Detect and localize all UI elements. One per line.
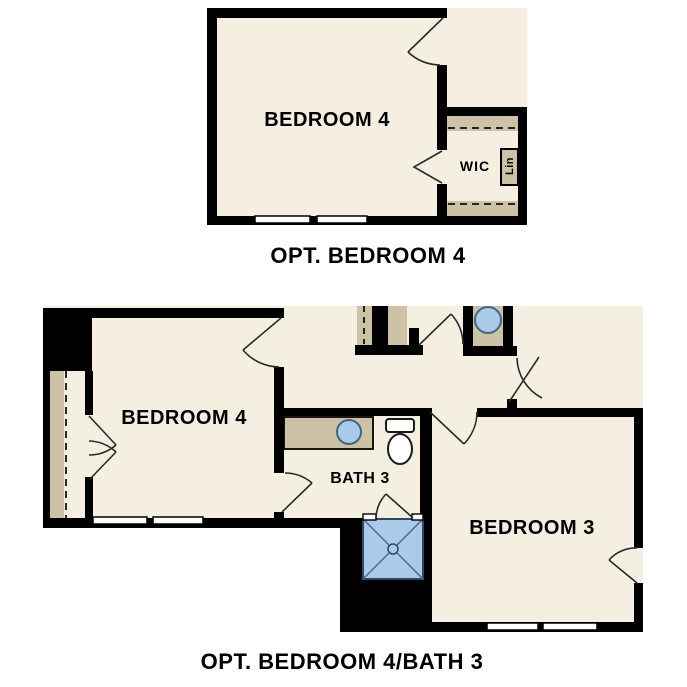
bd4-wall-right-seg2 — [274, 512, 284, 528]
linen-label: Lin — [504, 157, 516, 175]
wall-right-seg2 — [437, 184, 447, 225]
bd3-wall-right-seg1 — [634, 408, 643, 548]
toilet-tank — [386, 419, 414, 432]
wall-top — [207, 8, 447, 18]
floorplan-svg: BEDROOM 4 WIC Lin OPT. BEDROOM 4 — [0, 0, 687, 687]
shower-jamb-left — [363, 514, 376, 520]
hall-vanity-wall-left — [463, 306, 473, 347]
bd4-wall-right-seg1 — [274, 367, 284, 473]
wall-left — [207, 8, 217, 225]
plan-top-caption: OPT. BEDROOM 4 — [270, 243, 466, 268]
plan-opt-bedroom4-bath3: BEDROOM 4 BATH 3 BEDROOM 3 OPT. BEDROOM … — [43, 306, 643, 674]
wic-wall-right — [518, 107, 527, 225]
window — [255, 216, 310, 223]
shower-drain — [388, 544, 398, 554]
bd4-wall-left — [43, 371, 50, 528]
wic-shelf-top — [447, 116, 518, 131]
hall-vanity-wall-right — [503, 306, 513, 347]
hall-wall-below-vanity — [463, 346, 517, 356]
hall-closet-jamb — [409, 328, 419, 345]
closet-jamb-bottom — [85, 477, 93, 518]
bedroom4b-closet-shelf — [50, 371, 64, 518]
bedroom4b-label: BEDROOM 4 — [121, 407, 247, 429]
bath3-sink — [337, 420, 361, 444]
toilet-bowl — [388, 434, 412, 464]
window — [153, 517, 203, 524]
bath3-wall-top — [274, 408, 430, 416]
hall-closet-wall-bottom — [355, 345, 423, 355]
plan-bottom-caption: OPT. BEDROOM 4/BATH 3 — [201, 649, 484, 674]
bedroom3-label: BEDROOM 3 — [469, 517, 595, 539]
closet-jamb-top — [85, 371, 93, 415]
bath3-label: BATH 3 — [330, 470, 390, 487]
wic-label: WIC — [460, 158, 490, 174]
hall-closet-divider — [372, 306, 388, 345]
hall-sink — [475, 307, 501, 333]
plan-opt-bedroom4: BEDROOM 4 WIC Lin OPT. BEDROOM 4 — [207, 8, 527, 268]
bd3-door-jamb-stub — [507, 399, 517, 408]
window — [93, 517, 147, 524]
wic-shelf-bottom — [447, 201, 518, 216]
window — [317, 216, 367, 223]
hall-closet-shelf-b — [388, 306, 407, 345]
bd3-wall-top — [477, 408, 643, 417]
wic-wall-top — [437, 107, 527, 116]
bd4-wall-top — [43, 308, 284, 318]
floorplan-sheet: BEDROOM 4 WIC Lin OPT. BEDROOM 4 — [0, 0, 687, 687]
shower-jamb-right — [412, 514, 423, 520]
bedroom4-label: BEDROOM 4 — [264, 109, 390, 131]
window — [543, 623, 597, 630]
window — [487, 623, 538, 630]
